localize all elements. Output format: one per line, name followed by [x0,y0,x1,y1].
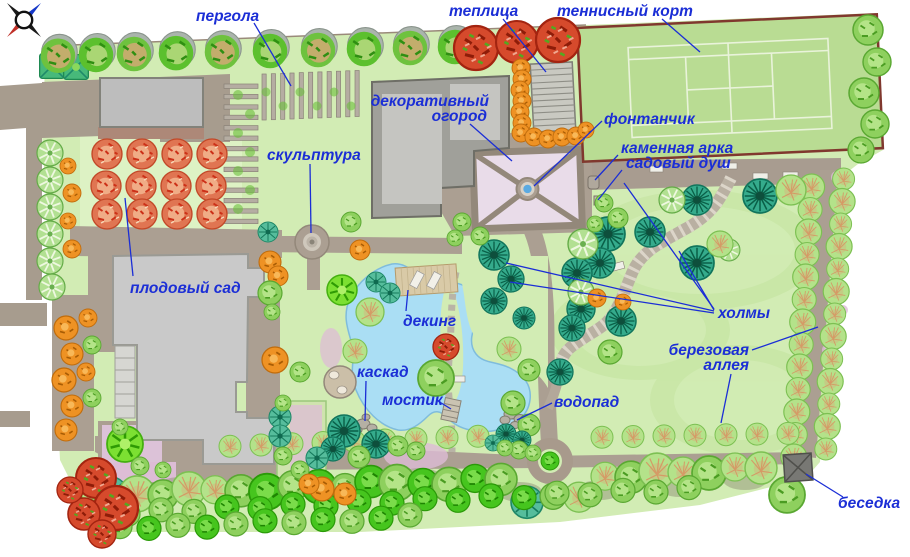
svg-text:холмы: холмы [717,305,770,322]
svg-text:плодовый сад: плодовый сад [130,280,241,297]
svg-text:скульптура: скульптура [267,147,361,164]
svg-text:теплица: теплица [449,3,519,20]
svg-text:аллея: аллея [703,357,749,374]
svg-text:водопад: водопад [554,394,620,411]
svg-text:пергола: пергола [196,8,260,25]
svg-text:декинг: декинг [403,313,456,330]
svg-text:теннисный корт: теннисный корт [557,3,693,20]
svg-text:беседка: беседка [838,495,900,512]
svg-text:огород: огород [432,108,488,125]
svg-text:фонтанчик: фонтанчик [604,111,696,128]
svg-text:каскад: каскад [357,364,409,381]
svg-text:мостик: мостик [382,392,444,409]
svg-text:садовый душ: садовый душ [626,155,731,172]
